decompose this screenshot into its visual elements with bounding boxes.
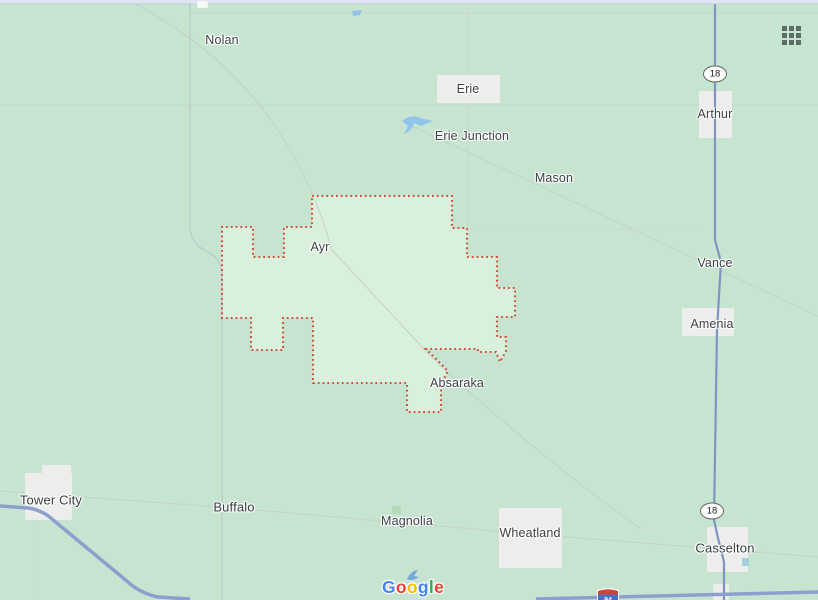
map-label-wheatland[interactable]: Wheatland xyxy=(499,526,560,540)
map-label-tower-city[interactable]: Tower City xyxy=(20,493,82,508)
map-label-erie-junction[interactable]: Erie Junction xyxy=(435,129,509,143)
map-label-nolan[interactable]: Nolan xyxy=(205,33,238,47)
map-label-magnolia[interactable]: Magnolia xyxy=(381,514,433,528)
google-logo-letter: G xyxy=(382,577,396,597)
map-label-amenia[interactable]: Amenia xyxy=(690,317,733,331)
apps-grid-icon[interactable] xyxy=(782,26,801,45)
park-square xyxy=(392,506,401,514)
map-label-ayr[interactable]: Ayr xyxy=(311,240,330,254)
route-18-shield-north: 18 xyxy=(703,66,727,83)
map-label-mason[interactable]: Mason xyxy=(535,171,573,185)
map-canvas[interactable]: 94 xyxy=(0,0,818,600)
map-label-vance[interactable]: Vance xyxy=(697,256,732,270)
map-graphics: 94 xyxy=(0,0,818,600)
google-logo[interactable]: Google xyxy=(382,577,444,598)
map-label-casselton[interactable]: Casselton xyxy=(695,541,754,556)
route-18-shield-south: 18 xyxy=(700,503,724,520)
map-label-arthur[interactable]: Arthur xyxy=(698,107,733,121)
map-label-absaraka[interactable]: Absaraka xyxy=(430,376,484,390)
google-logo-letter: o xyxy=(396,577,407,597)
interstate-94-shield: 94 xyxy=(597,588,619,600)
map-viewport: { "map": { "place_labels": [ {"text": "N… xyxy=(0,0,818,600)
google-logo-letter: e xyxy=(434,577,444,597)
google-logo-letter: o xyxy=(407,577,418,597)
google-logo-letter: g xyxy=(418,577,429,597)
top-boundary-band xyxy=(0,0,818,8)
map-label-buffalo[interactable]: Buffalo xyxy=(213,500,254,515)
map-label-erie[interactable]: Erie xyxy=(457,82,480,96)
